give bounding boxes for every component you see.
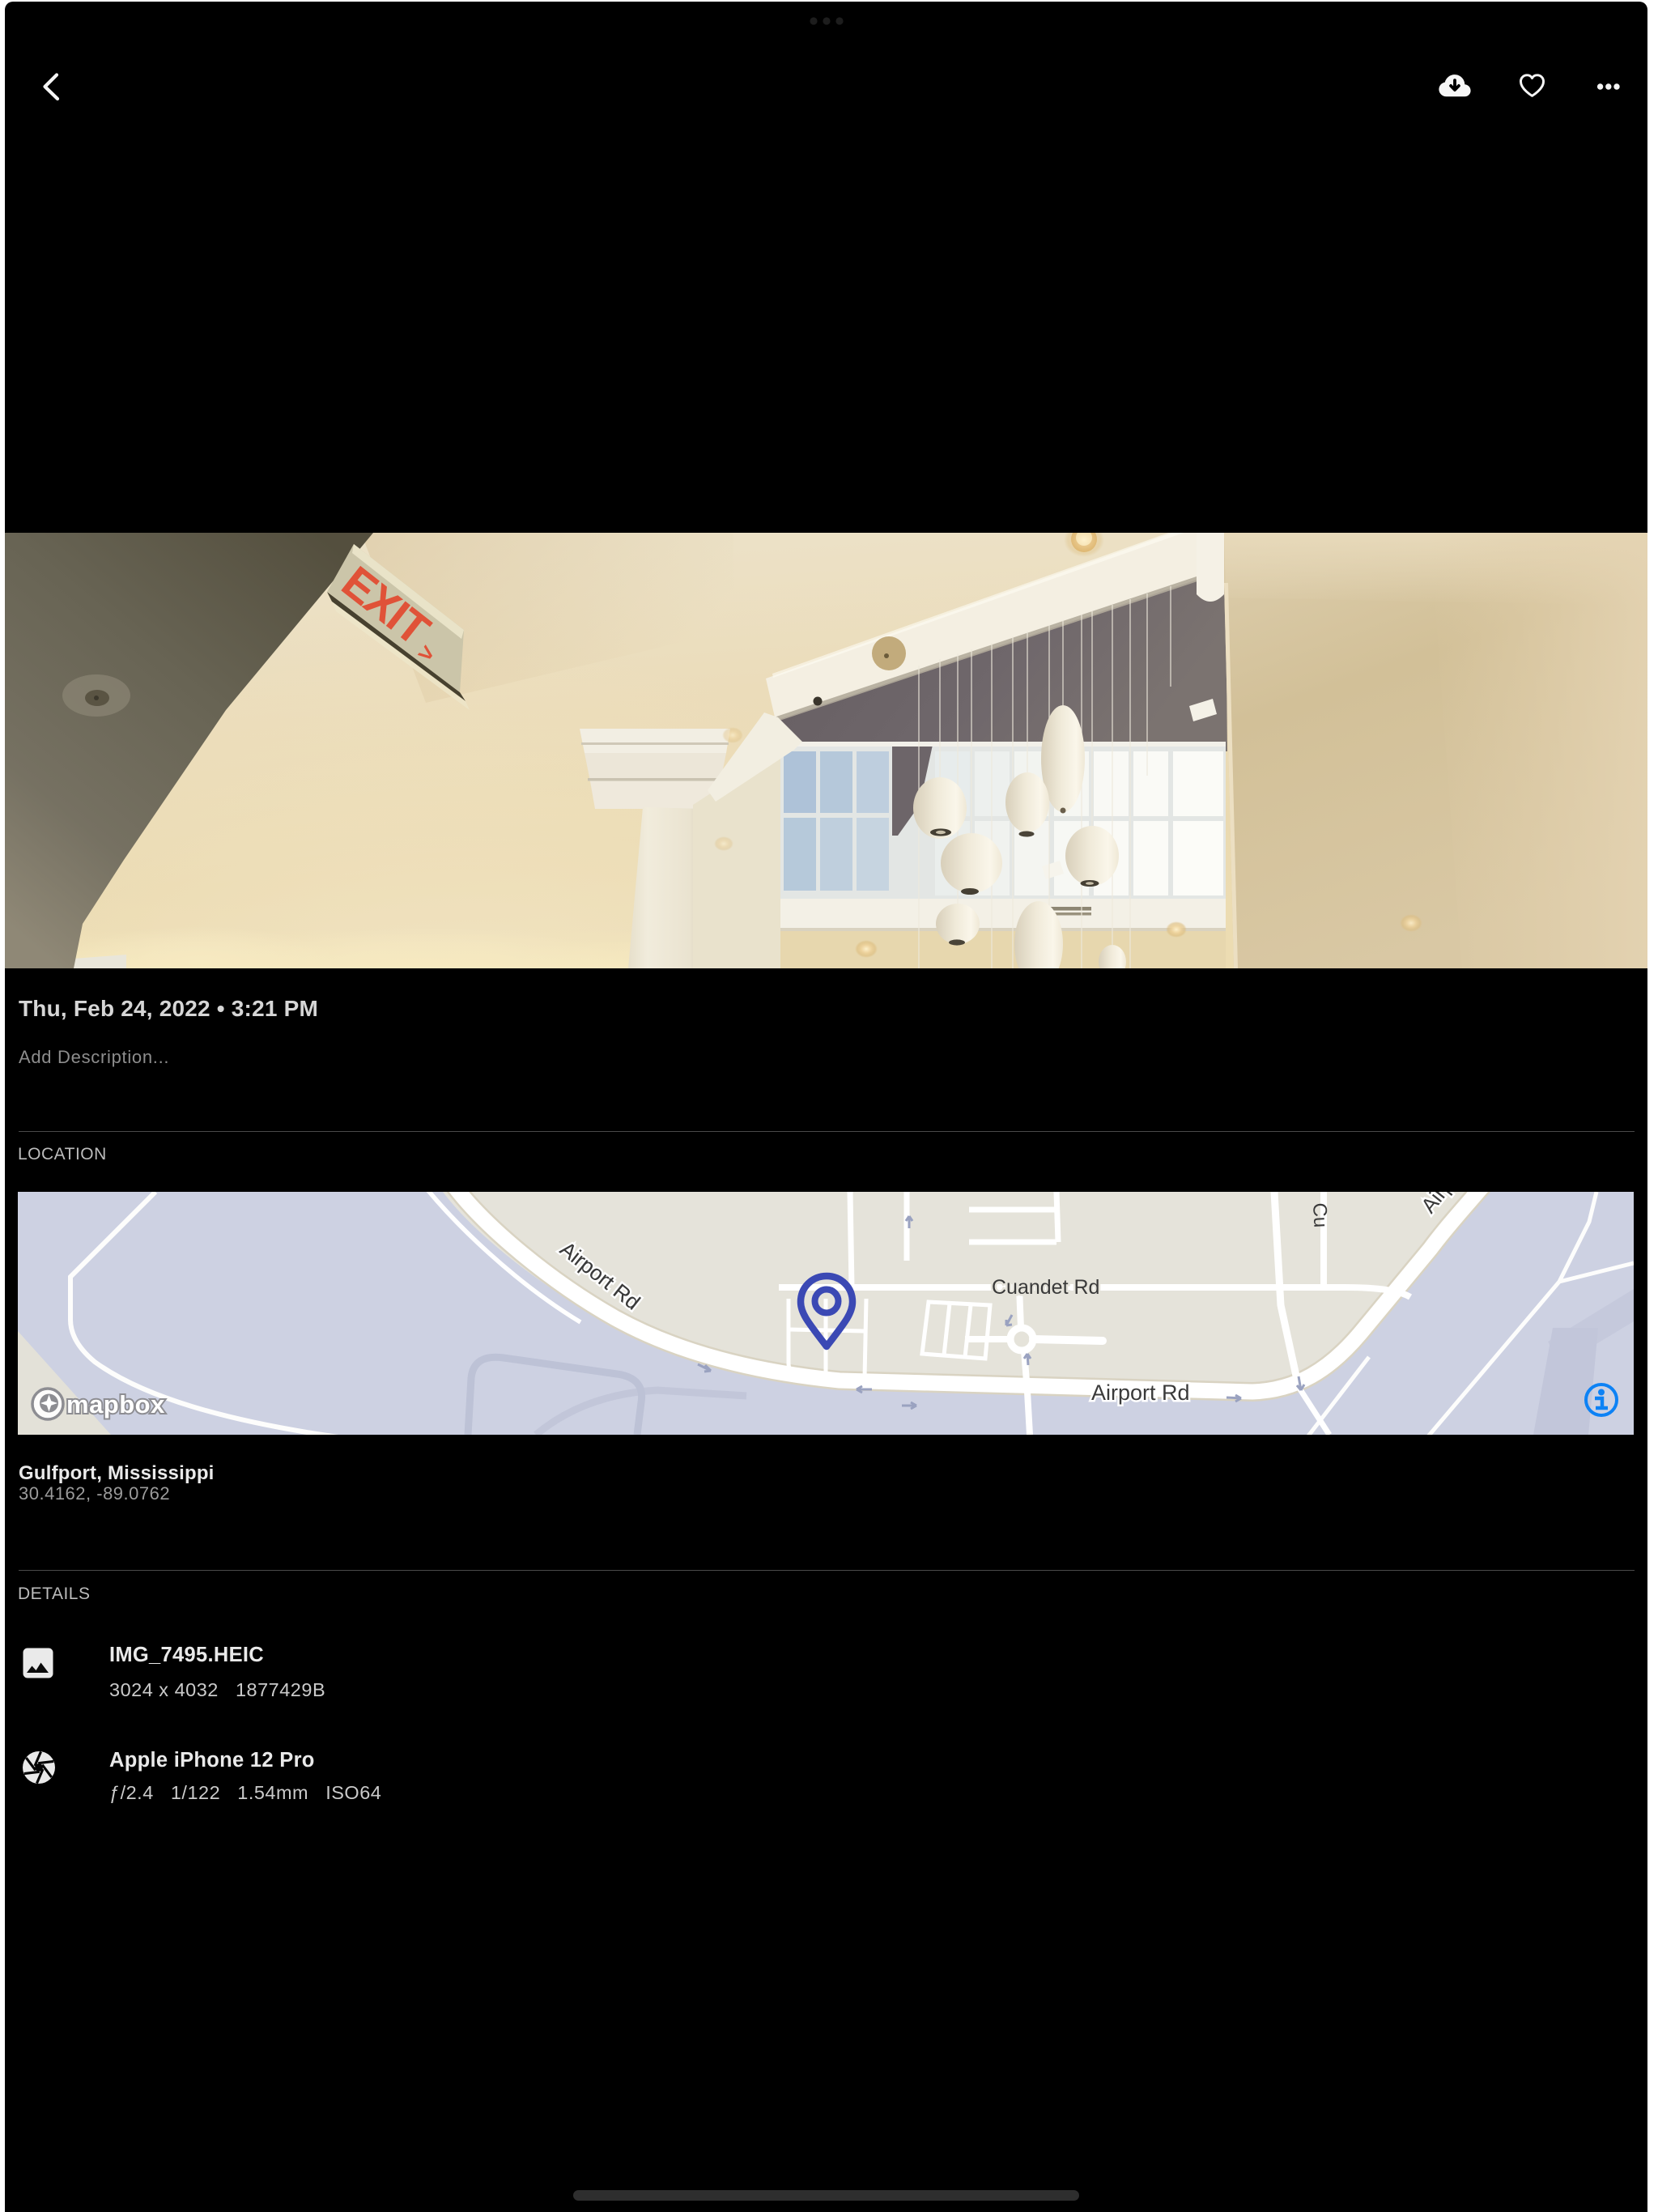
svg-text:Airport Rd: Airport Rd [1091, 1380, 1190, 1405]
svg-text:mapbox: mapbox [66, 1390, 165, 1419]
svg-text:Cuandet Rd: Cuandet Rd [992, 1276, 1099, 1299]
svg-text:Cu: Cu [1308, 1202, 1332, 1228]
